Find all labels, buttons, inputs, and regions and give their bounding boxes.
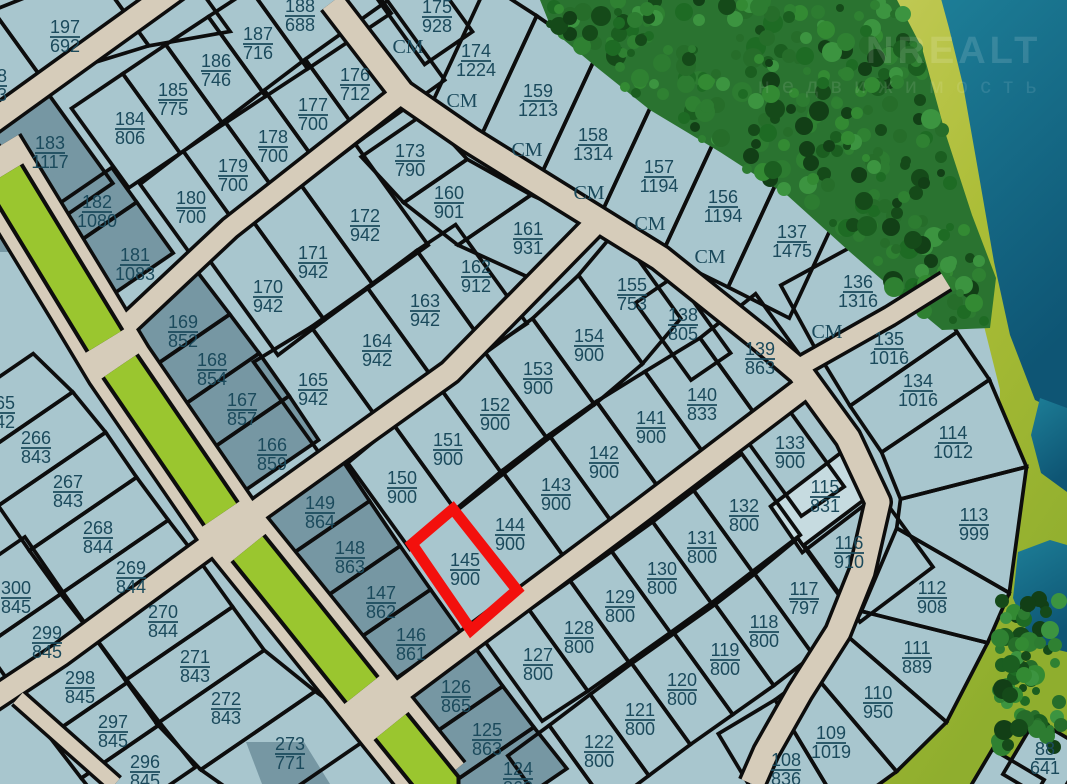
svg-text:865: 865 [441,696,471,716]
svg-text:117: 117 [790,579,819,599]
svg-text:844: 844 [116,577,146,597]
svg-text:863: 863 [745,358,775,378]
svg-text:112: 112 [918,578,947,598]
svg-text:712: 712 [340,84,370,104]
svg-text:942: 942 [410,310,440,330]
svg-text:163: 163 [410,291,440,311]
svg-text:162: 162 [461,257,491,277]
svg-text:805: 805 [668,324,698,344]
svg-text:910: 910 [834,552,864,572]
svg-text:845: 845 [130,771,160,784]
svg-text:1016: 1016 [898,390,938,410]
svg-text:942: 942 [298,262,328,282]
svg-text:900: 900 [433,449,463,469]
svg-text:124: 124 [503,759,533,779]
svg-text:135: 135 [874,329,904,349]
svg-text:1213: 1213 [518,100,558,120]
svg-text:136: 136 [843,272,873,292]
svg-text:198: 198 [0,66,7,86]
svg-text:800: 800 [729,515,759,535]
svg-text:863: 863 [335,557,365,577]
svg-text:900: 900 [523,378,553,398]
svg-text:140: 140 [687,385,717,405]
svg-text:942: 942 [350,225,380,245]
svg-text:174: 174 [461,41,491,61]
svg-text:143: 143 [541,475,571,495]
svg-text:931: 931 [513,238,543,258]
svg-text:267: 267 [53,472,83,492]
svg-text:800: 800 [523,664,553,684]
svg-text:700: 700 [298,114,328,134]
svg-text:901: 901 [434,202,464,222]
svg-text:797: 797 [789,598,819,618]
svg-text:800: 800 [605,606,635,626]
svg-text:806: 806 [115,128,145,148]
svg-text:800: 800 [667,689,697,709]
svg-text:889: 889 [902,657,932,677]
svg-text:175: 175 [422,0,452,17]
svg-text:183: 183 [35,133,65,153]
svg-text:716: 716 [243,43,273,63]
svg-text:836: 836 [771,769,801,784]
svg-text:1475: 1475 [772,241,812,261]
svg-text:900: 900 [541,494,571,514]
svg-text:900: 900 [775,452,805,472]
svg-text:863: 863 [472,739,502,759]
svg-text:854: 854 [197,369,227,389]
svg-text:845: 845 [32,642,62,662]
svg-text:800: 800 [749,631,779,651]
svg-text:180: 180 [176,188,206,208]
svg-text:999: 999 [959,524,989,544]
svg-text:177: 177 [298,95,328,115]
svg-text:179: 179 [218,156,248,176]
svg-text:187: 187 [243,24,273,44]
svg-text:298: 298 [65,668,95,688]
svg-text:145: 145 [450,550,480,570]
svg-text:118: 118 [750,612,779,632]
svg-text:119: 119 [711,640,740,660]
svg-text:171: 171 [298,243,328,263]
svg-text:120: 120 [667,670,697,690]
svg-text:131: 131 [687,528,717,548]
svg-text:111: 111 [903,638,930,658]
svg-text:139: 139 [745,339,775,359]
svg-text:1224: 1224 [456,60,496,80]
svg-text:942: 942 [298,389,328,409]
svg-text:861: 861 [396,644,426,664]
svg-text:150: 150 [387,468,417,488]
svg-text:844: 844 [83,537,113,557]
svg-text:700: 700 [176,207,206,227]
svg-text:181: 181 [120,245,150,265]
svg-text:843: 843 [211,708,241,728]
svg-text:845: 845 [98,731,128,751]
svg-text:864: 864 [305,512,335,532]
svg-text:188: 188 [285,0,315,16]
svg-text:831: 831 [810,496,840,516]
svg-text:142: 142 [589,443,619,463]
svg-text:942: 942 [362,350,392,370]
svg-text:166: 166 [257,435,287,455]
svg-text:134: 134 [903,371,933,391]
svg-text:СМ: СМ [811,321,842,343]
svg-text:1016: 1016 [869,348,909,368]
svg-text:843: 843 [0,85,7,105]
svg-text:1019: 1019 [811,742,851,762]
svg-text:753: 753 [617,294,647,314]
svg-text:800: 800 [564,637,594,657]
svg-text:115: 115 [811,477,840,497]
svg-text:857: 857 [227,409,257,429]
svg-text:845: 845 [1,597,31,617]
svg-text:900: 900 [450,569,480,589]
svg-text:269: 269 [116,558,146,578]
svg-text:271: 271 [180,647,210,667]
svg-text:900: 900 [495,534,525,554]
svg-text:843: 843 [53,491,83,511]
svg-text:692: 692 [50,36,80,56]
svg-text:156: 156 [708,187,738,207]
svg-text:NREALT: NREALT [866,30,1041,72]
svg-text:843: 843 [180,666,210,686]
svg-text:908: 908 [917,597,947,617]
svg-text:109: 109 [816,723,846,743]
svg-text:852: 852 [168,331,198,351]
svg-text:800: 800 [687,547,717,567]
svg-text:272: 272 [211,689,241,709]
svg-text:900: 900 [636,427,666,447]
svg-text:833: 833 [687,404,717,424]
svg-text:88: 88 [1035,739,1055,759]
svg-text:129: 129 [605,587,635,607]
svg-text:110: 110 [864,683,893,703]
svg-text:СМ: СМ [573,182,604,204]
svg-text:161: 161 [513,219,543,239]
svg-text:182: 182 [82,192,112,212]
svg-text:165: 165 [298,370,328,390]
svg-text:155: 155 [617,275,647,295]
svg-text:928: 928 [422,16,452,36]
svg-text:1083: 1083 [115,264,155,284]
svg-text:775: 775 [158,99,188,119]
svg-text:116: 116 [835,533,864,553]
svg-text:771: 771 [275,753,305,773]
svg-text:266: 266 [21,428,51,448]
svg-text:СМ: СМ [634,213,665,235]
svg-text:299: 299 [32,623,62,643]
svg-text:137: 137 [777,222,807,242]
svg-text:296: 296 [130,752,160,772]
svg-text:950: 950 [863,702,893,722]
svg-text:273: 273 [275,734,305,754]
svg-text:127: 127 [523,645,553,665]
svg-text:113: 113 [960,505,989,525]
svg-text:169: 169 [168,312,198,332]
svg-text:863: 863 [503,778,533,784]
svg-text:168: 168 [197,350,227,370]
svg-text:121: 121 [625,700,655,720]
svg-text:842: 842 [0,412,15,432]
svg-text:800: 800 [647,578,677,598]
svg-text:недвижимость: недвижимость [758,75,1049,98]
svg-text:700: 700 [258,146,288,166]
svg-text:157: 157 [644,157,674,177]
svg-text:СМ: СМ [511,139,542,161]
svg-text:178: 178 [258,127,288,147]
svg-text:170: 170 [253,277,283,297]
svg-text:126: 126 [441,677,471,697]
svg-text:688: 688 [285,15,315,35]
svg-text:128: 128 [564,618,594,638]
svg-text:160: 160 [434,183,464,203]
svg-text:130: 130 [647,559,677,579]
svg-text:270: 270 [148,602,178,622]
svg-text:912: 912 [461,276,491,296]
svg-text:800: 800 [625,719,655,739]
svg-text:845: 845 [65,687,95,707]
svg-text:1194: 1194 [640,176,679,196]
svg-text:164: 164 [362,331,392,351]
svg-text:1314: 1314 [573,144,613,164]
svg-text:1194: 1194 [704,206,743,226]
svg-text:122: 122 [584,732,614,752]
svg-text:185: 185 [158,80,188,100]
svg-text:148: 148 [335,538,365,558]
svg-text:125: 125 [472,720,502,740]
svg-text:197: 197 [50,17,80,37]
svg-text:172: 172 [350,206,380,226]
svg-text:700: 700 [218,175,248,195]
svg-text:746: 746 [201,70,231,90]
svg-text:942: 942 [253,296,283,316]
svg-text:297: 297 [98,712,128,732]
svg-text:141: 141 [636,408,666,428]
svg-text:СМ: СМ [446,90,477,112]
svg-text:800: 800 [710,659,740,679]
svg-text:1316: 1316 [838,291,878,311]
svg-text:152: 152 [480,395,510,415]
svg-text:844: 844 [148,621,178,641]
svg-text:108: 108 [771,750,801,770]
svg-text:СМ: СМ [694,246,725,268]
svg-text:900: 900 [589,462,619,482]
svg-text:114: 114 [939,423,968,443]
svg-text:138: 138 [668,305,698,325]
svg-text:153: 153 [523,359,553,379]
svg-text:265: 265 [0,393,15,413]
svg-text:147: 147 [366,583,396,603]
svg-text:641: 641 [1030,758,1060,778]
svg-text:268: 268 [83,518,113,538]
svg-text:1080: 1080 [77,211,117,231]
svg-text:1012: 1012 [933,442,973,462]
svg-text:167: 167 [227,390,257,410]
svg-text:173: 173 [395,141,425,161]
svg-text:176: 176 [340,65,370,85]
svg-text:300: 300 [1,578,31,598]
svg-text:186: 186 [201,51,231,71]
svg-text:900: 900 [480,414,510,434]
svg-text:1117: 1117 [31,152,68,172]
svg-text:790: 790 [395,160,425,180]
svg-text:843: 843 [21,447,51,467]
svg-text:СМ: СМ [392,36,423,58]
svg-text:154: 154 [574,326,604,346]
svg-text:900: 900 [387,487,417,507]
svg-text:800: 800 [584,751,614,771]
svg-text:151: 151 [433,430,463,450]
svg-text:144: 144 [495,515,525,535]
svg-text:132: 132 [729,496,759,516]
svg-text:184: 184 [115,109,145,129]
svg-text:900: 900 [574,345,604,365]
svg-text:859: 859 [257,454,287,474]
svg-text:149: 149 [305,493,335,513]
svg-text:158: 158 [578,125,608,145]
svg-text:133: 133 [775,433,805,453]
svg-text:862: 862 [366,602,396,622]
svg-text:146: 146 [396,625,426,645]
svg-text:159: 159 [523,81,553,101]
